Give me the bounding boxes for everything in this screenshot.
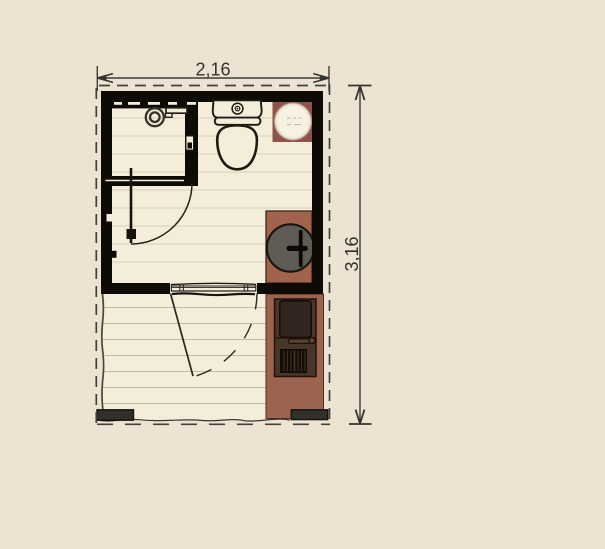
- svg-text:2,16: 2,16: [195, 60, 230, 80]
- svg-text:3,16: 3,16: [342, 236, 362, 271]
